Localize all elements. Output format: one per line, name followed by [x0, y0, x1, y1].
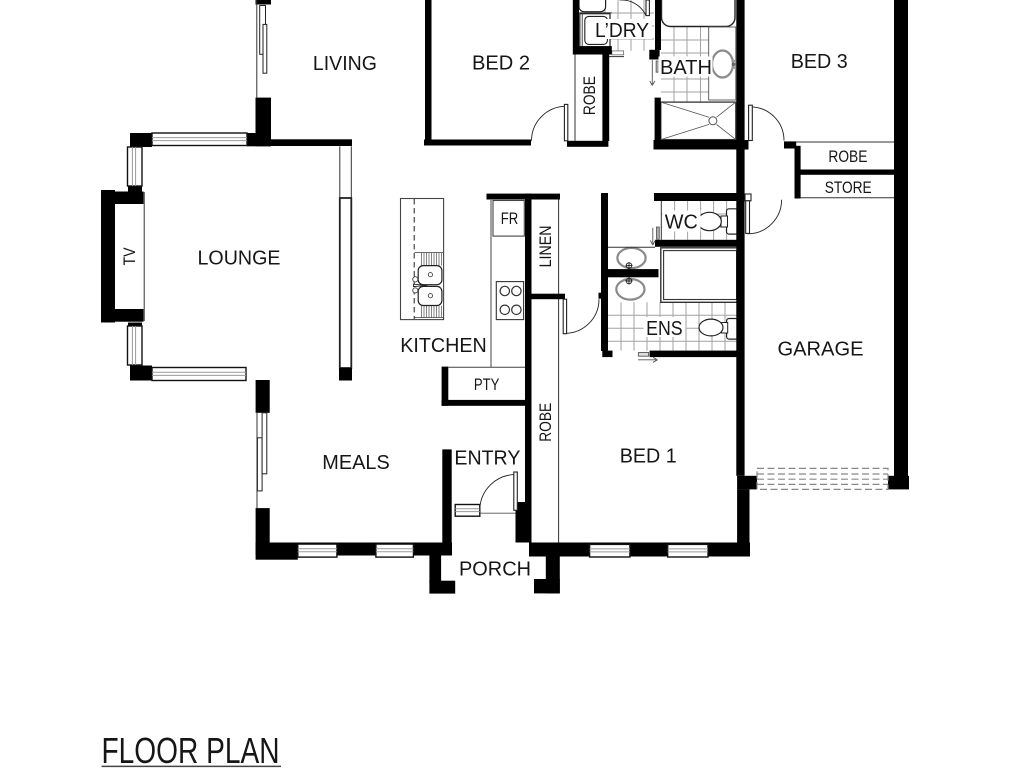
- svg-text:BATH: BATH: [660, 56, 712, 79]
- svg-text:BED 1: BED 1: [620, 445, 677, 468]
- svg-text:ROBE: ROBE: [580, 76, 599, 115]
- svg-text:GARAGE: GARAGE: [778, 338, 864, 361]
- svg-text:WC: WC: [665, 211, 698, 234]
- svg-text:ROBE: ROBE: [536, 403, 555, 442]
- svg-text:ENS: ENS: [646, 317, 683, 340]
- svg-text:ROBE: ROBE: [828, 147, 867, 166]
- svg-text:PORCH: PORCH: [459, 557, 531, 580]
- svg-text:LINEN: LINEN: [536, 225, 555, 267]
- svg-text:MEALS: MEALS: [322, 451, 390, 474]
- svg-text:BED 3: BED 3: [791, 50, 848, 73]
- svg-text:BED 2: BED 2: [472, 52, 530, 75]
- svg-text:ENTRY: ENTRY: [454, 447, 520, 470]
- svg-text:STORE: STORE: [825, 178, 872, 197]
- svg-text:PTY: PTY: [474, 375, 500, 394]
- svg-text:FLOOR PLAN: FLOOR PLAN: [102, 730, 280, 768]
- svg-text:TV: TV: [120, 247, 139, 266]
- svg-text:LIVING: LIVING: [313, 52, 377, 75]
- svg-text:L’DRY: L’DRY: [595, 19, 649, 42]
- svg-text:FR: FR: [501, 209, 519, 228]
- svg-text:KITCHEN: KITCHEN: [400, 334, 487, 357]
- svg-text:LOUNGE: LOUNGE: [198, 246, 281, 269]
